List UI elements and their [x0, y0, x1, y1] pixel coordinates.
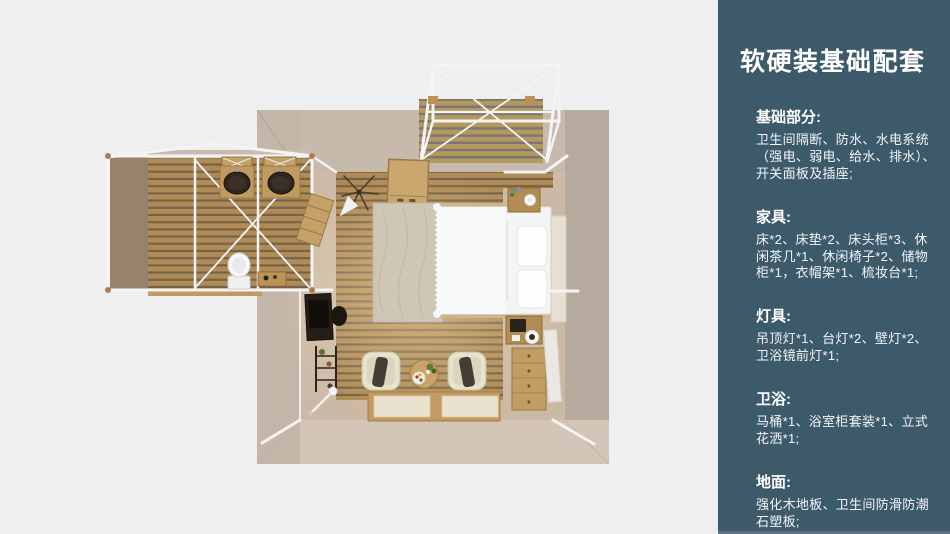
- section-heading: 基础部分:: [756, 106, 936, 127]
- spec-sections: 基础部分: 卫生间隔断、防水、水电系统（强电、弱电、给水、排水）、开关面板及插座…: [756, 106, 936, 531]
- section-basics: 基础部分: 卫生间隔断、防水、水电系统（强电、弱电、给水、排水）、开关面板及插座…: [756, 106, 936, 183]
- tea-table: [410, 360, 438, 388]
- section-heading: 地面:: [756, 471, 936, 492]
- floor-mats: [368, 392, 500, 421]
- section-body: 强化木地板、卫生间防滑防潮石塑板;: [756, 497, 936, 531]
- section-body: 床*2、床垫*2、床头柜*3、休闲茶几*1、休闲椅子*2、储物柜*1，衣帽架*1…: [756, 232, 936, 283]
- desk-chair: [331, 306, 347, 326]
- storage-cabinet: [387, 159, 429, 204]
- section-sanitary: 卫浴: 马桶*1、浴室柜套装*1、立式花洒*1;: [756, 388, 936, 448]
- section-heading: 卫浴:: [756, 388, 936, 409]
- bed: [433, 203, 551, 318]
- section-furniture: 家具: 床*2、床垫*2、床头柜*3、休闲茶几*1、休闲椅子*2、储物柜*1，衣…: [756, 206, 936, 283]
- section-heading: 灯具:: [756, 305, 936, 326]
- floorplan-panel: [0, 0, 718, 534]
- work-desk: [305, 293, 333, 340]
- floorplan-image: [0, 0, 718, 534]
- dressing-table: [506, 316, 542, 344]
- area-rug: [373, 203, 443, 322]
- headboard-panel: [551, 216, 566, 322]
- poster-canvas: 软硬装基础配套 基础部分: 卫生间隔断、防水、水电系统（强电、弱电、给水、排水）…: [0, 0, 950, 534]
- section-body: 吊顶灯*1、台灯*2、壁灯*2、卫浴镜前灯*1;: [756, 331, 936, 365]
- section-lighting: 灯具: 吊顶灯*1、台灯*2、壁灯*2、卫浴镜前灯*1;: [756, 305, 936, 365]
- section-heading: 家具:: [756, 206, 936, 227]
- nightstand-top: [508, 187, 540, 213]
- toilet: [228, 253, 250, 289]
- section-body: 卫生间隔断、防水、水电系统（强电、弱电、给水、排水）、开关面板及插座;: [756, 132, 936, 183]
- section-flooring: 地面: 强化木地板、卫生间防滑防潮石塑板;: [756, 471, 936, 531]
- spec-sidebar: 软硬装基础配套 基础部分: 卫生间隔断、防水、水电系统（强电、弱电、给水、排水）…: [718, 0, 950, 534]
- lounge-chair-left: [362, 352, 400, 390]
- bathroom-annex: [105, 144, 336, 296]
- lounge-chair-right: [448, 352, 486, 390]
- dresser: [512, 348, 546, 410]
- section-body: 马桶*1、浴室柜套装*1、立式花洒*1;: [756, 414, 936, 448]
- bath-side-table: [258, 272, 286, 286]
- panel-title: 软硬装基础配套: [740, 42, 936, 78]
